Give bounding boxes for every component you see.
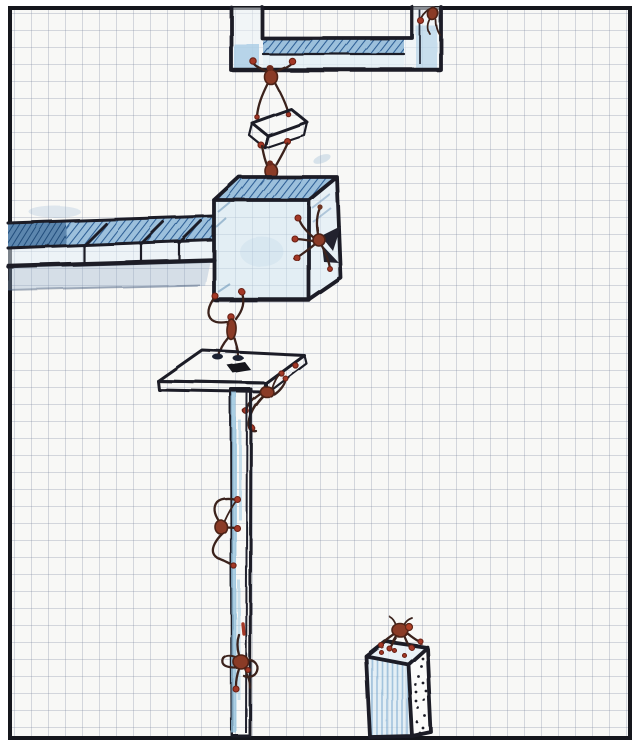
cube-face-wash xyxy=(240,237,284,267)
ant-head xyxy=(267,160,273,165)
sketch-page xyxy=(0,0,640,746)
ant-head xyxy=(406,624,413,631)
smudge xyxy=(29,206,81,218)
ant-body xyxy=(313,234,325,246)
support-pillar xyxy=(231,389,251,736)
ant-foot xyxy=(233,355,244,361)
hanging-beam xyxy=(231,7,441,70)
beam-front-face xyxy=(263,54,404,68)
ant-mark xyxy=(243,624,244,634)
smudge xyxy=(312,152,332,166)
corner-block xyxy=(366,641,431,737)
platform-hole xyxy=(227,362,251,373)
ant-foot xyxy=(213,354,224,360)
pillar-inner-line xyxy=(246,392,247,733)
ant-body xyxy=(234,655,249,669)
beam-hatch-band xyxy=(263,39,404,54)
ant-foot-dot xyxy=(418,18,424,24)
ant-body xyxy=(215,520,227,534)
ant-head xyxy=(267,65,274,71)
ink-drawing xyxy=(0,0,640,746)
ant-body xyxy=(265,70,278,85)
side-beam xyxy=(8,206,214,290)
ant-body xyxy=(261,387,274,398)
beam-top-dark-end xyxy=(8,221,66,248)
